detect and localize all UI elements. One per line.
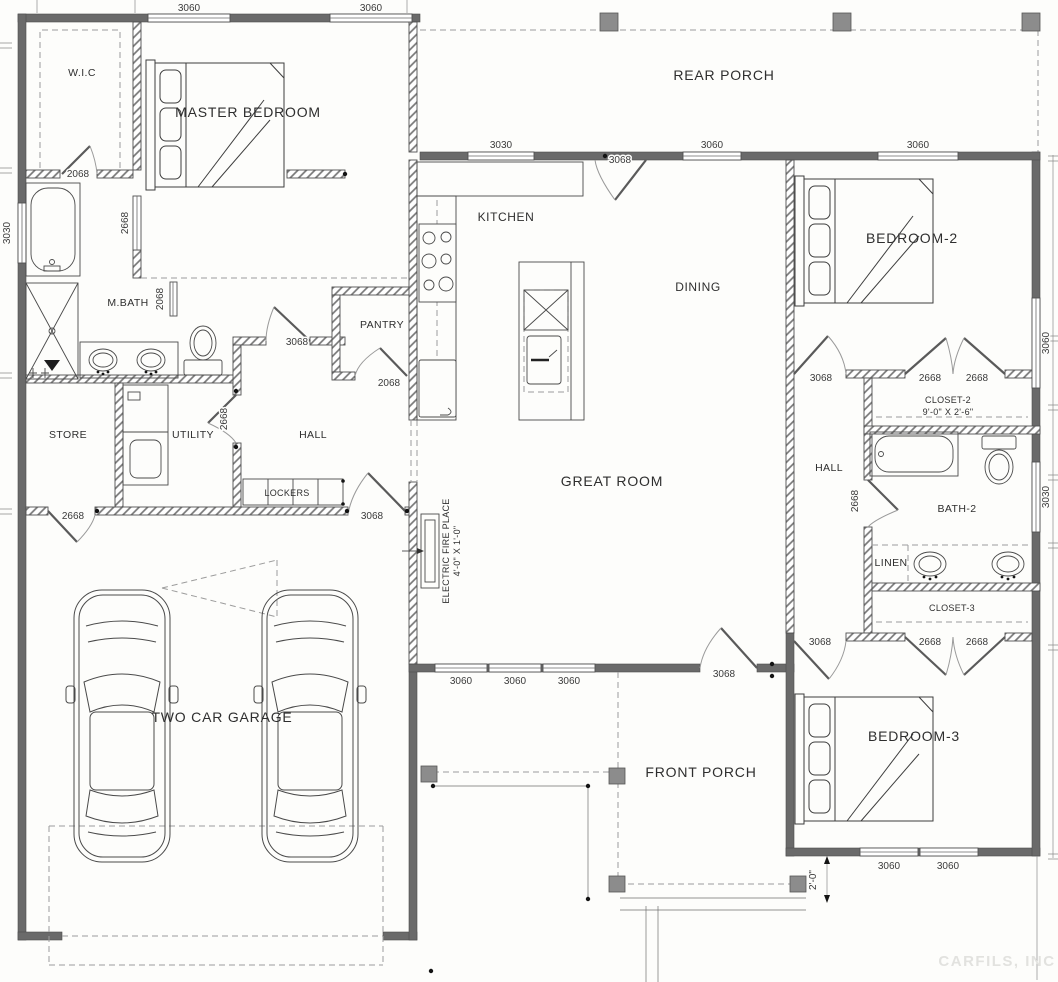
dim-great-win1: 3060: [450, 676, 473, 687]
room-label-master-bedroom: MASTER BEDROOM: [175, 104, 321, 120]
window: [148, 14, 230, 22]
furniture: [66, 60, 933, 862]
fireplace-label-line2: 4'-0" X 1'-0": [452, 526, 462, 577]
room-label-dining: DINING: [675, 280, 721, 294]
cased-opening: [133, 196, 141, 250]
front-porch-outline: [421, 766, 1037, 982]
bedroom3-bed: [795, 694, 933, 824]
window: [920, 848, 978, 856]
dim-bath2-door: 2668: [850, 489, 861, 512]
stove: [419, 224, 456, 302]
room-label-pantry: PANTRY: [360, 319, 404, 331]
window: [18, 203, 26, 263]
room-label-bedroom2: BEDROOM-2: [866, 230, 958, 246]
closet2-doors: [905, 338, 1005, 374]
kitchen-island: [519, 262, 584, 420]
room-label-bath2: BATH-2: [938, 503, 977, 515]
dim-closet2-door1: 2668: [919, 373, 942, 384]
hall-garage-door: [348, 473, 405, 515]
dim-bed3-win1: 3060: [878, 861, 901, 872]
fireplace-label-line1: ELECTRIC FIRE PLACE: [441, 498, 451, 603]
window: [878, 152, 958, 160]
bathtub: [26, 183, 80, 276]
dim-front-door: 3068: [713, 669, 736, 680]
porch-depth-dim: [824, 856, 830, 903]
dim-rear-door: 3068: [609, 155, 632, 166]
dim-bed3-win2: 3060: [937, 861, 960, 872]
dim-store-door: 2668: [62, 511, 85, 522]
dim-din-win: 3060: [701, 140, 724, 151]
dim-bed2-win-top: 3060: [907, 140, 930, 151]
room-label-linen: LINEN: [875, 557, 908, 569]
room-label-great-room: GREAT ROOM: [561, 473, 663, 489]
master-hall-door: [266, 307, 310, 341]
room-label-hall-right: HALL: [815, 462, 843, 474]
dim-bed2-door: 3068: [810, 373, 833, 384]
toilet: [184, 326, 222, 375]
dim-hall-garage-door: 3068: [361, 511, 384, 522]
room-label-kitchen: KITCHEN: [478, 210, 535, 224]
floor-plan: REAR PORCH W.I.C MASTER BEDROOM KITCHEN …: [0, 0, 1058, 982]
vanity: [914, 552, 1024, 580]
room-label-closet2-size: 9'-0" X 2'-6": [923, 407, 974, 417]
kitchen-fixtures: [417, 162, 584, 420]
bathtub: [870, 432, 958, 476]
pocket-door: [170, 282, 177, 316]
room-label-store: STORE: [49, 429, 87, 441]
vanity: [80, 342, 178, 378]
room-label-hall-left: HALL: [299, 429, 327, 441]
kitchen-counter: [417, 162, 583, 196]
dim-pantry-door: 2068: [378, 378, 401, 389]
dim-porch-depth: 2'-0": [808, 870, 819, 890]
room-label-closet2: CLOSET-2: [925, 395, 971, 405]
dim-great-win2: 3060: [504, 676, 527, 687]
dim-bath2-win-right: 3030: [1041, 485, 1052, 508]
window: [860, 848, 918, 856]
fireplace: [402, 514, 439, 588]
floor-plan-drawing: REAR PORCH W.I.C MASTER BEDROOM KITCHEN …: [0, 0, 1058, 982]
room-label-mbath: M.BATH: [107, 297, 148, 309]
dim-master-opening: 2668: [120, 211, 131, 234]
dim-bed3-door: 3068: [809, 637, 832, 648]
window: [468, 152, 534, 160]
dim-closet3-door2: 2668: [966, 637, 989, 648]
dim-mbath-door: 3068: [286, 337, 309, 348]
window: [489, 664, 541, 672]
refrigerator: [419, 360, 456, 417]
toilet: [982, 436, 1016, 484]
master-bed: [146, 60, 284, 190]
island-sink: [527, 336, 561, 384]
room-label-rear-porch: REAR PORCH: [673, 67, 774, 83]
room-label-bedroom3: BEDROOM-3: [868, 728, 960, 744]
dim-wic-door: 2068: [67, 169, 90, 180]
window: [435, 664, 487, 672]
dim-bed2-win-right: 3060: [1041, 331, 1052, 354]
dim-great-win3: 3060: [558, 676, 581, 687]
shower: [26, 283, 78, 379]
car-left: [66, 590, 178, 862]
front-door: [700, 628, 757, 668]
dim-left-win: 3030: [2, 221, 13, 244]
window: [1032, 298, 1040, 388]
watermark: CARFILS, INC: [938, 953, 1055, 970]
bath2-door: [868, 480, 898, 527]
dim-top-win2: 3060: [360, 3, 383, 14]
room-label-utility: UTILITY: [172, 429, 214, 441]
window: [683, 152, 741, 160]
dim-top-win1: 3060: [178, 3, 201, 14]
dim-kit-win: 3030: [490, 140, 513, 151]
pantry-door: [355, 348, 407, 376]
room-label-front-porch: FRONT PORCH: [645, 764, 756, 780]
window: [330, 14, 412, 22]
shower-drain: [44, 360, 60, 371]
dim-mbath-pocket: 2068: [155, 287, 166, 310]
dim-utility-door: 2668: [219, 407, 230, 430]
room-label-wic: W.I.C: [68, 67, 96, 79]
dim-closet2-door2: 2668: [966, 373, 989, 384]
bedroom2-door: [794, 336, 846, 374]
rear-door: [595, 160, 646, 200]
window: [543, 664, 595, 672]
car-right: [254, 590, 366, 862]
room-label-closet3: CLOSET-3: [929, 603, 975, 613]
room-label-garage: TWO CAR GARAGE: [151, 709, 292, 725]
room-label-lockers: LOCKERS: [264, 488, 309, 498]
dim-closet3-door1: 2668: [919, 637, 942, 648]
window: [1032, 462, 1040, 532]
